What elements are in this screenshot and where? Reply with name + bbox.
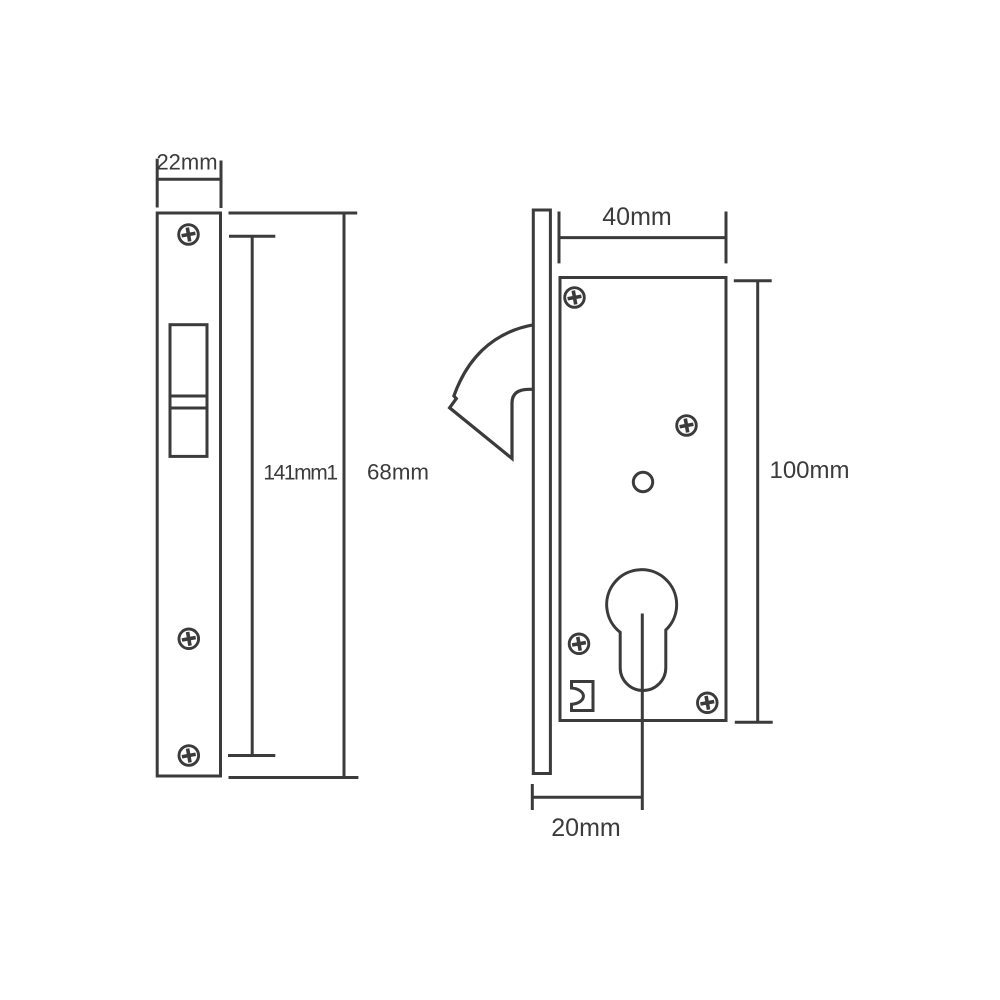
svg-text:20mm: 20mm [551, 814, 620, 842]
svg-text:68mm: 68mm [367, 460, 429, 485]
svg-text:100mm: 100mm [769, 457, 849, 484]
svg-text:141mm1: 141mm1 [263, 462, 337, 485]
svg-text:40mm: 40mm [602, 203, 671, 231]
svg-text:22mm: 22mm [156, 150, 217, 175]
